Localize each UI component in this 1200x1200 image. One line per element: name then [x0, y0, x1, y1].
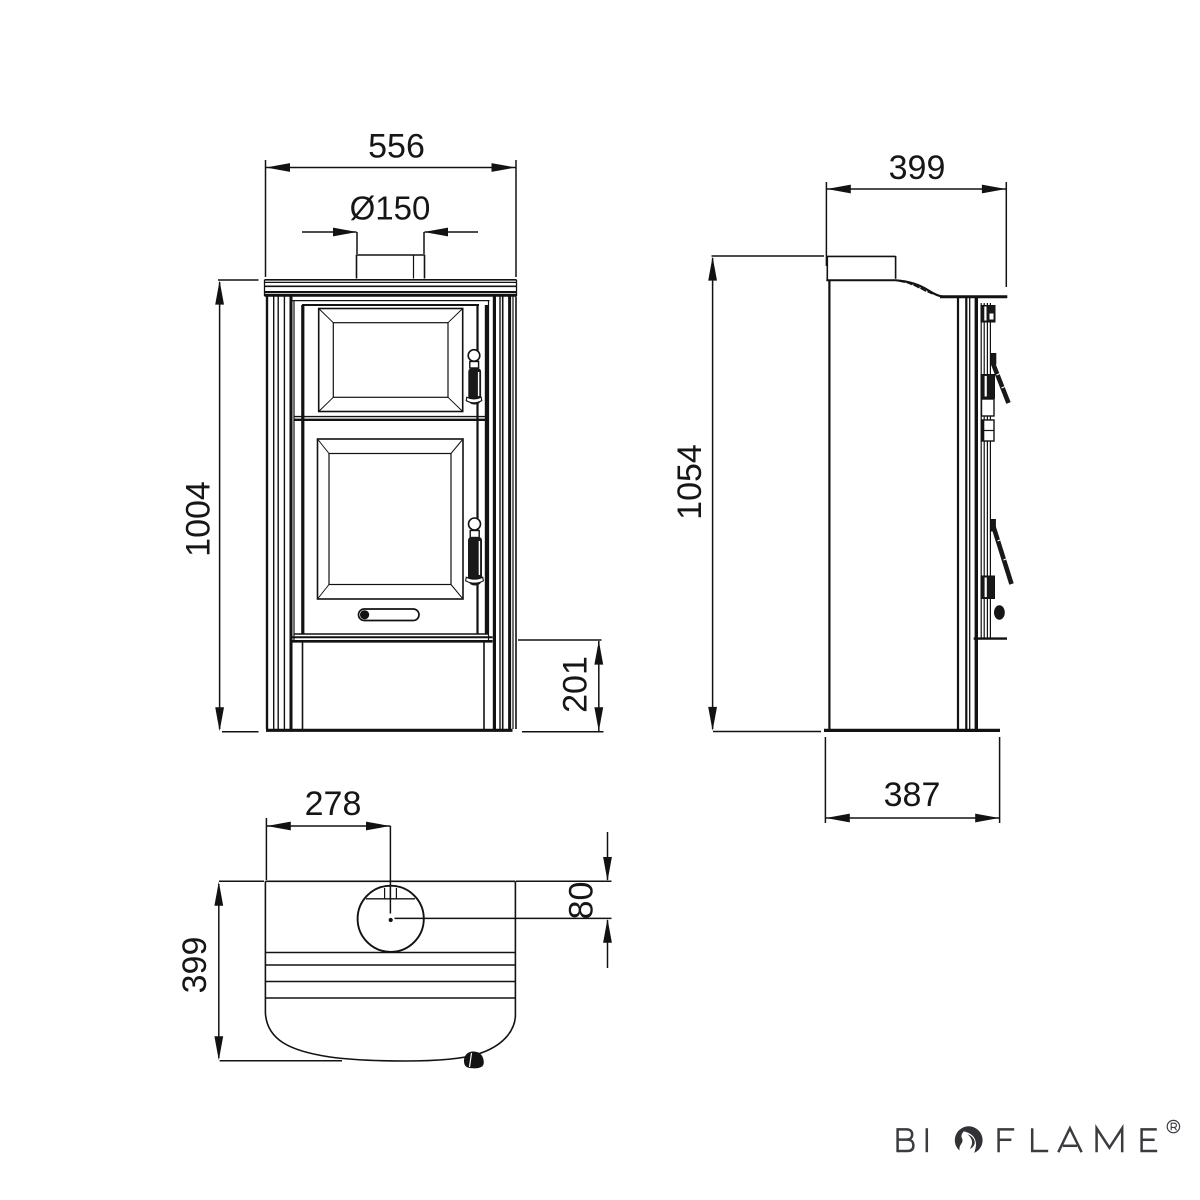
svg-text:1004: 1004 [180, 481, 218, 557]
svg-text:278: 278 [305, 785, 362, 823]
svg-text:399: 399 [889, 149, 946, 187]
svg-text:556: 556 [368, 128, 425, 166]
svg-text:387: 387 [884, 776, 941, 814]
svg-text:Ø150: Ø150 [350, 190, 431, 227]
svg-text:80: 80 [563, 882, 601, 920]
svg-text:399: 399 [176, 937, 214, 994]
svg-text:201: 201 [557, 656, 595, 713]
svg-text:1054: 1054 [671, 444, 709, 520]
